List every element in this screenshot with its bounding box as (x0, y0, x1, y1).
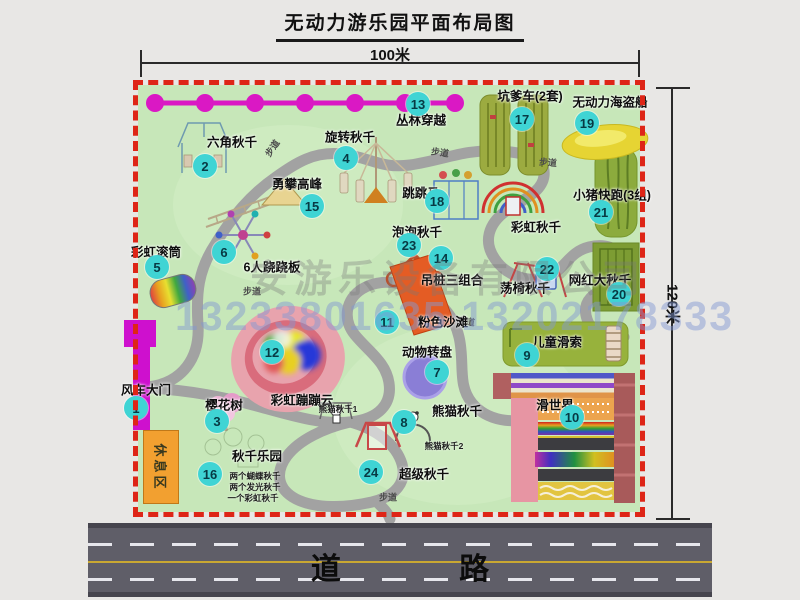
attraction-label: 彩虹秋千 (511, 217, 561, 236)
attraction-label: 风车大门 (121, 380, 171, 399)
attraction-number-badge: 6 (212, 240, 236, 264)
road-label: 道 路 (88, 544, 712, 588)
attraction-number-badge: 24 (359, 460, 383, 484)
attraction-label: 粉色沙滩 (418, 312, 468, 331)
attraction-number-badge: 18 (425, 189, 449, 213)
dimension-line (140, 62, 640, 64)
attraction-number-badge: 20 (607, 282, 631, 306)
rest-area: 休息区 (143, 430, 179, 504)
slide-world-icon (493, 373, 635, 503)
attraction-label: 秋千乐园 (232, 446, 282, 465)
attraction-label: 六角秋千 (207, 132, 257, 151)
walkway-label: 步道 (538, 155, 557, 170)
attraction-number-badge: 21 (589, 200, 613, 224)
attraction-label: 超级秋千 (399, 464, 449, 483)
attraction-label: 坑爹车(2套) (497, 86, 562, 105)
attraction-label: 勇攀高峰 (272, 174, 322, 193)
page-title: 无动力游乐园平面布局图 (276, 8, 523, 42)
attraction-label: 儿童滑索 (532, 332, 582, 351)
attraction-number-badge: 9 (515, 343, 539, 367)
attraction-number-badge: 7 (425, 360, 449, 384)
attraction-number-badge: 14 (429, 246, 453, 270)
attraction-number-badge: 17 (510, 107, 534, 131)
attraction-note: 一个彩虹秋千 (227, 492, 278, 504)
height-dimension: 120米 (656, 87, 690, 520)
attraction-number-badge: 10 (560, 405, 584, 429)
attraction-number-badge: 1 (124, 396, 148, 420)
attraction-label: 无动力海盗船 (572, 92, 647, 111)
attraction-label: 熊猫秋千 (432, 401, 482, 420)
height-dimension-label: 120米 (663, 283, 684, 323)
rest-area-label: 休息区 (152, 443, 171, 491)
attraction-label: 6人跷跷板 (244, 257, 301, 276)
walkway-label: 步道 (430, 144, 450, 159)
attraction-label: 旋转秋千 (325, 127, 375, 146)
attraction-number-badge: 2 (193, 154, 217, 178)
dimension-tick (656, 518, 690, 520)
attraction-number-badge: 11 (375, 310, 399, 334)
walkway-label: 步道 (379, 491, 397, 504)
dimension-tick (140, 50, 142, 77)
road: 道 路 (88, 523, 712, 597)
attraction-number-badge: 12 (260, 340, 284, 364)
attraction-number-badge: 4 (334, 146, 358, 170)
attraction-label: 吊桩三组合 (421, 270, 484, 289)
attraction-label: 动物转盘 (402, 342, 452, 361)
attraction-number-badge: 15 (300, 194, 324, 218)
attraction-number-badge: 8 (392, 410, 416, 434)
attraction-label: 小猪快跑(3组) (573, 185, 651, 204)
park-area: 步道 步道 步道 步道 步道 步道 休息区 风车大门1六角秋千2樱花树3旋转秋千… (138, 85, 640, 512)
dimension-tick (638, 50, 640, 77)
dimension-tick (656, 87, 690, 89)
attraction-note: 熊猫秋千1 (319, 403, 358, 415)
attraction-number-badge: 16 (198, 462, 222, 486)
attraction-number-badge: 5 (145, 255, 169, 279)
attraction-number-badge: 22 (535, 257, 559, 281)
attraction-number-badge: 13 (406, 92, 430, 116)
walkway-label: 步道 (243, 285, 261, 298)
page-title-wrap: 无动力游乐园平面布局图 (0, 8, 800, 42)
attraction-note: 熊猫秋千2 (425, 440, 464, 452)
width-dimension: 100米 (140, 46, 640, 76)
attraction-number-badge: 19 (575, 111, 599, 135)
attraction-number-badge: 23 (397, 233, 421, 257)
attraction-number-badge: 3 (205, 409, 229, 433)
